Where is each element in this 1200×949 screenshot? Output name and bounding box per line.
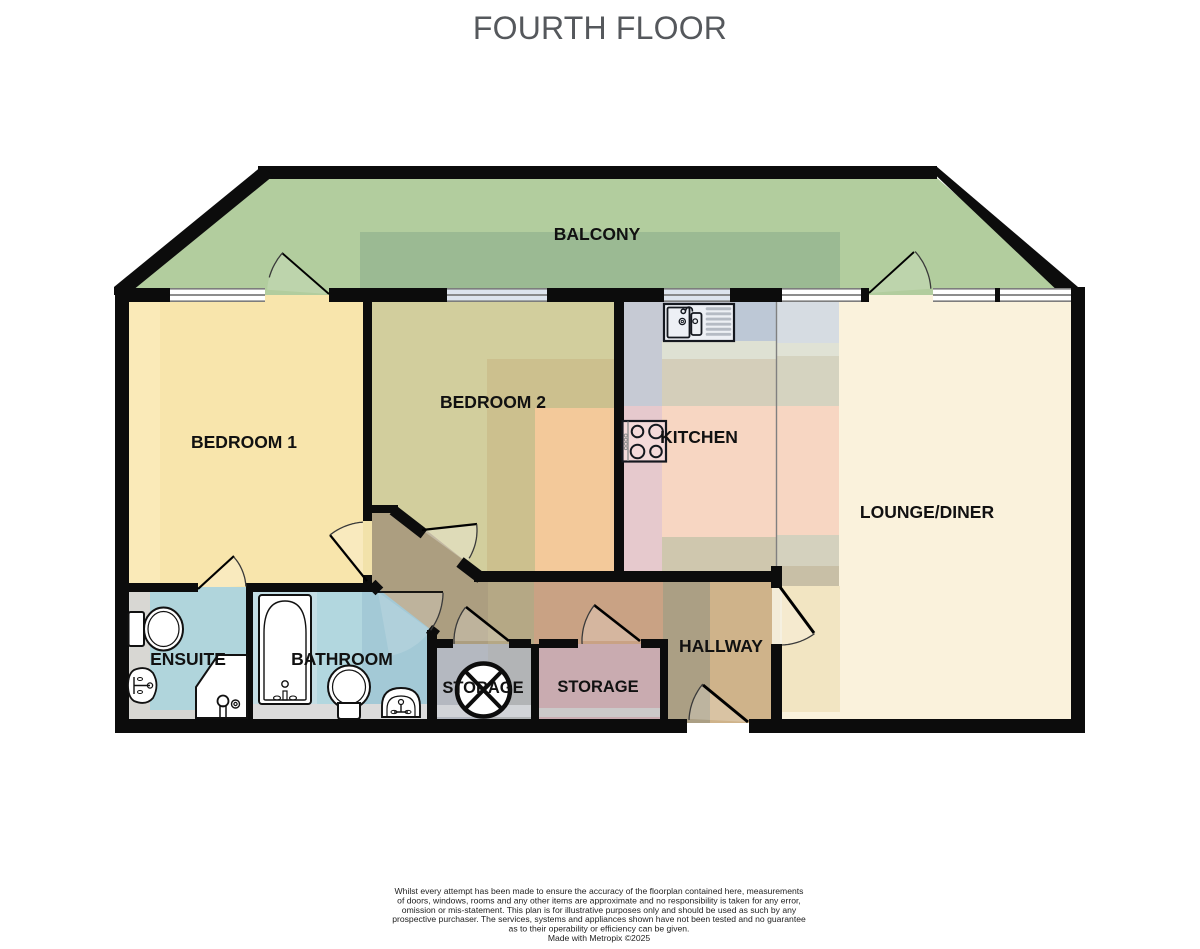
svg-text:FOURTH FLOOR: FOURTH FLOOR [473,10,727,46]
svg-text:BATHROOM: BATHROOM [291,649,393,669]
svg-text:Made with Metropix ©2025: Made with Metropix ©2025 [548,933,651,943]
svg-text:LOUNGE/DINER: LOUNGE/DINER [860,502,995,522]
svg-text:BALCONY: BALCONY [554,224,641,244]
svg-text:ENSUITE: ENSUITE [150,649,226,669]
svg-text:HALLWAY: HALLWAY [679,636,763,656]
svg-text:KITCHEN: KITCHEN [660,427,738,447]
svg-text:BEDROOM 1: BEDROOM 1 [191,432,297,452]
svg-text:BEDROOM 2: BEDROOM 2 [440,392,546,412]
svg-text:STORAGE: STORAGE [557,678,638,696]
